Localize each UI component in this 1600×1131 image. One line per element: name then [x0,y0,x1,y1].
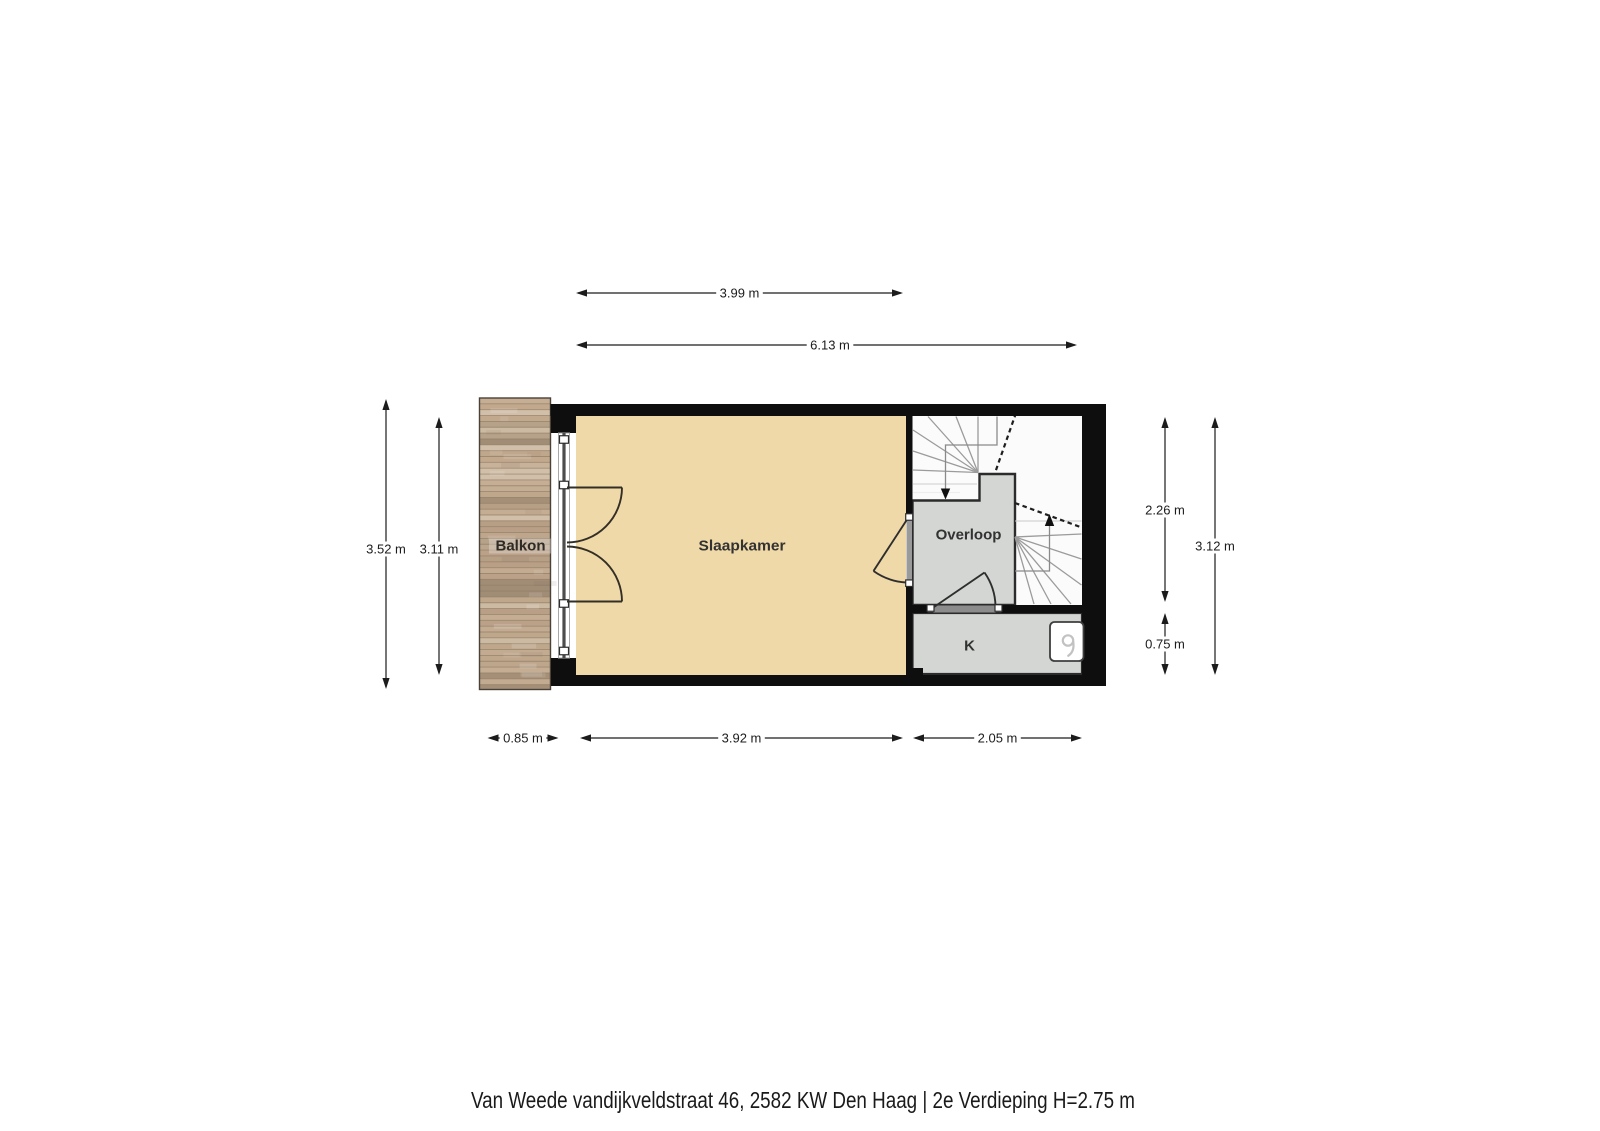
svg-text:0.75 m: 0.75 m [1145,637,1185,652]
svg-text:3.11 m: 3.11 m [420,542,459,557]
svg-text:6.13 m: 6.13 m [810,338,850,353]
svg-text:0.85 m: 0.85 m [503,731,543,746]
svg-text:2.26 m: 2.26 m [1145,503,1185,518]
svg-text:2.05 m: 2.05 m [978,731,1018,746]
svg-text:3.52 m: 3.52 m [366,542,406,557]
svg-text:K: K [964,638,975,655]
svg-text:Van Weede vandijkveldstraat 46: Van Weede vandijkveldstraat 46, 2582 KW … [471,1087,1135,1113]
svg-text:3.12 m: 3.12 m [1195,539,1235,554]
svg-text:3.92 m: 3.92 m [722,731,762,746]
svg-text:3.99 m: 3.99 m [720,286,760,301]
svg-text:Balkon: Balkon [495,538,545,555]
svg-text:Overloop: Overloop [936,527,1002,544]
svg-text:Slaapkamer: Slaapkamer [699,538,786,555]
